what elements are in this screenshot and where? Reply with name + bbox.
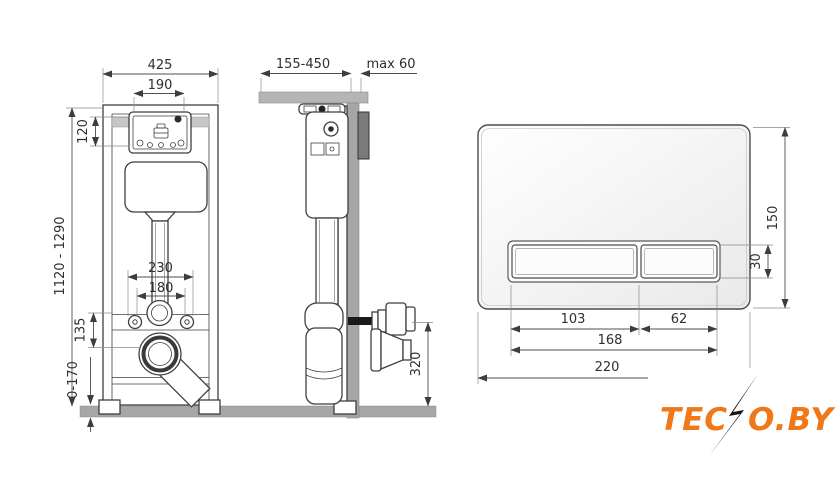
cistern-side <box>306 112 348 218</box>
dim-small-button-width: 62 <box>671 312 688 327</box>
dim-frame-height: 1120 - 1290 <box>53 216 68 295</box>
left-foot <box>99 400 120 414</box>
dim-window-height: 120 <box>76 119 91 144</box>
drawing-canvas: 425 190 120 230 180 135 0-170 <box>0 0 840 487</box>
outlet-connector <box>371 329 411 371</box>
service-window <box>129 112 191 153</box>
side-view: 155-450 max 60 320 <box>259 57 433 418</box>
logo-text-right: O.BY <box>748 402 836 438</box>
dim-outlet-offset: 135 <box>74 318 89 343</box>
drain-socket <box>139 333 181 375</box>
floor-section <box>80 406 436 417</box>
flush-plate-view: 150 30 103 62 168 220 <box>478 125 790 384</box>
dim-max-wall: max 60 <box>367 57 416 72</box>
dim-window-width: 190 <box>148 78 173 93</box>
dim-plate-width: 220 <box>595 360 620 375</box>
dim-floor-adjust: 0-170 <box>66 361 81 399</box>
wall-bracket-plate <box>358 112 369 159</box>
dim-outlet-height: 320 <box>409 352 424 377</box>
dim-big-button-width: 103 <box>561 312 586 327</box>
dim-frame-width: 425 <box>148 58 173 73</box>
front-view: 425 190 120 230 180 135 0-170 <box>53 58 220 432</box>
dim-button-height: 30 <box>749 253 764 270</box>
technical-drawing: 425 190 120 230 180 135 0-170 <box>0 0 840 487</box>
wall-section <box>347 103 359 418</box>
dim-spacing-outer: 230 <box>148 261 173 276</box>
flush-pipe-side <box>305 218 343 404</box>
dim-spacing-inner: 180 <box>149 281 174 296</box>
dim-buttons-total-width: 168 <box>598 333 623 348</box>
flush-pipe-outlet <box>147 301 172 326</box>
logo-text-left: TEC <box>660 402 728 438</box>
right-foot <box>199 400 220 414</box>
dim-plate-height: 150 <box>766 206 781 231</box>
dim-depth-range: 155-450 <box>276 57 330 72</box>
brand-logo: TEC O.BY <box>648 368 840 460</box>
support-bar <box>259 92 368 103</box>
flush-buttons <box>508 241 720 282</box>
big-flush-button <box>512 245 637 278</box>
fill-valve-port <box>175 116 182 123</box>
small-flush-button <box>641 245 717 278</box>
